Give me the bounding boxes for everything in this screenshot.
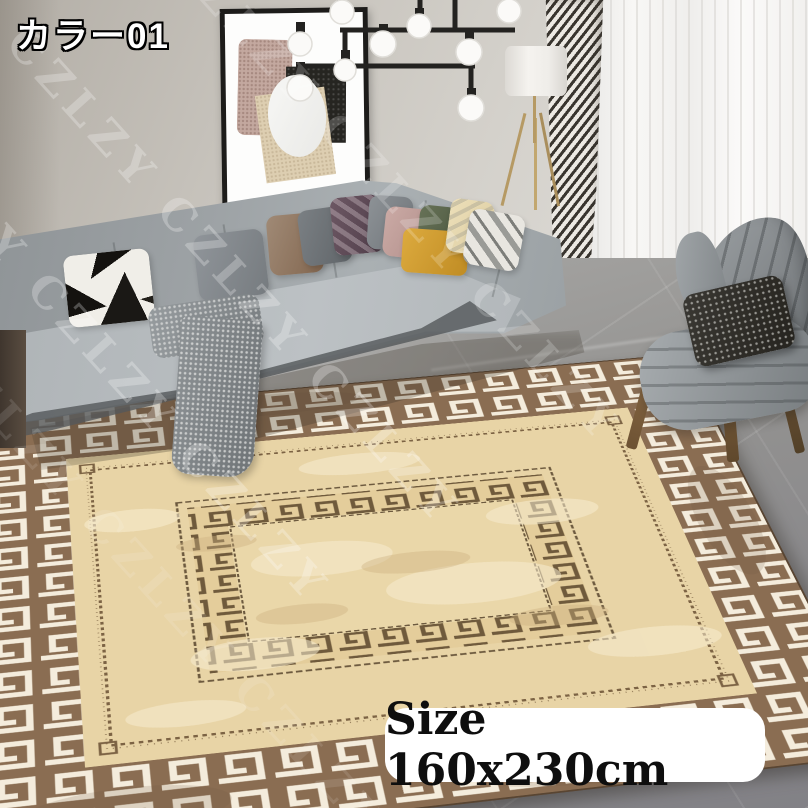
product-photo-living-room: CZLZY CZLZY CZLZY CZLZY CZLZY CZLZY CZLZ… bbox=[0, 0, 808, 808]
color-variant-label: カラー01 bbox=[16, 8, 170, 59]
size-badge-text: Size 160x230cm bbox=[385, 694, 765, 796]
size-badge: Size 160x230cm bbox=[385, 708, 765, 782]
